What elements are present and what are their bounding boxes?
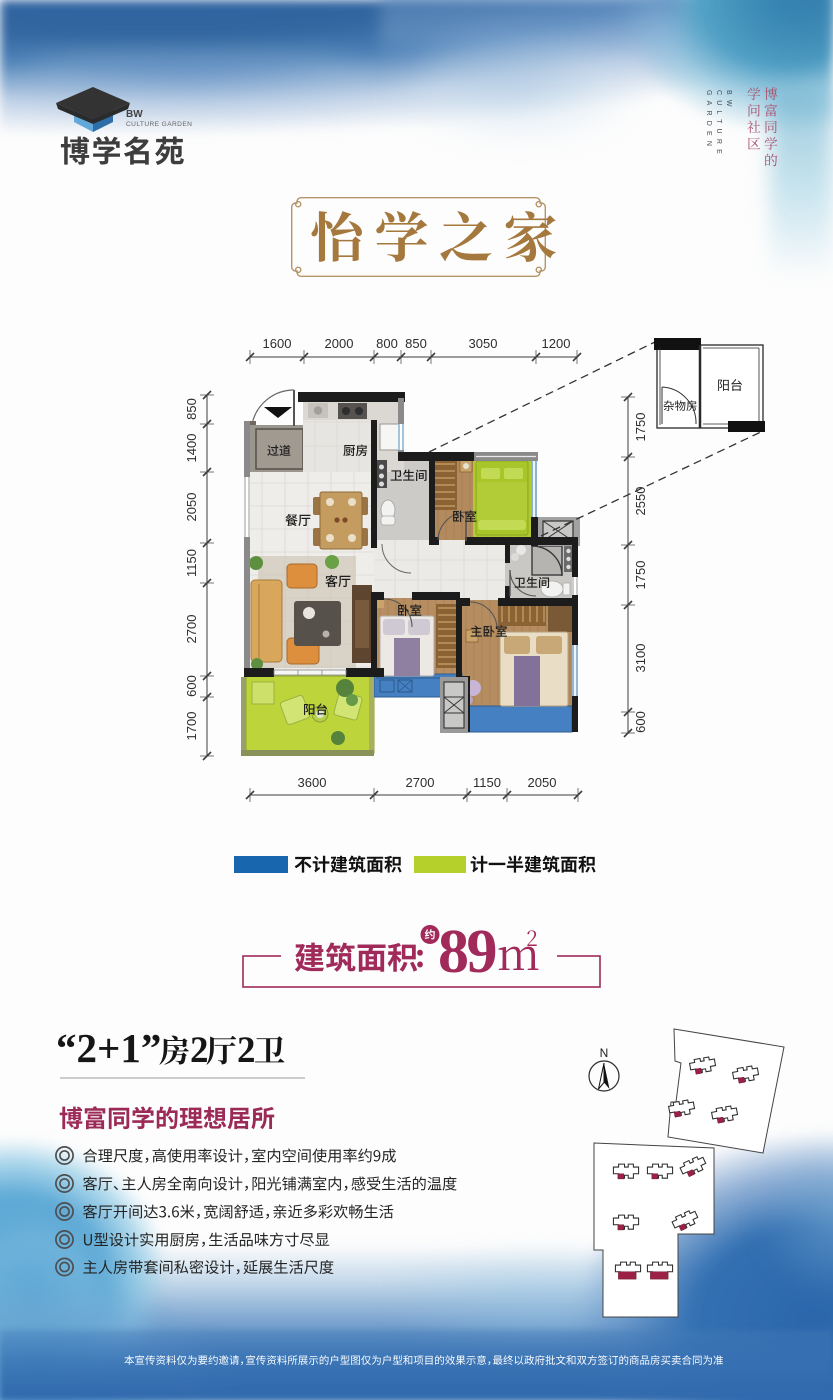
svg-text:2700: 2700 [406, 775, 435, 790]
svg-text:1750: 1750 [633, 561, 648, 590]
svg-text:1150: 1150 [184, 549, 199, 577]
svg-text:3100: 3100 [633, 644, 648, 673]
svg-text:CULTURE: CULTURE [715, 90, 722, 159]
svg-text:3600: 3600 [298, 775, 327, 790]
svg-text:2: 2 [190, 1030, 209, 1071]
svg-text:850: 850 [405, 336, 427, 351]
svg-text:850: 850 [184, 398, 199, 420]
svg-text:1400: 1400 [184, 434, 199, 463]
svg-text:1750: 1750 [633, 413, 648, 442]
svg-text:1600: 1600 [263, 336, 292, 351]
svg-text:2050: 2050 [528, 775, 557, 790]
svg-text:“2+1”: “2+1” [56, 1025, 161, 1071]
svg-text:CULTURE GARDEN: CULTURE GARDEN [126, 121, 192, 128]
svg-text:600: 600 [184, 675, 199, 697]
svg-text:1700: 1700 [184, 712, 199, 741]
svg-text:BW: BW [725, 90, 732, 112]
svg-text:600: 600 [633, 711, 648, 733]
svg-text:GARDEN: GARDEN [705, 90, 712, 151]
svg-text:89: 89 [438, 918, 496, 986]
svg-text:2050: 2050 [184, 493, 199, 522]
svg-text:BW: BW [126, 109, 143, 120]
svg-text:2000: 2000 [325, 336, 354, 351]
svg-text:N: N [600, 1046, 609, 1060]
svg-text:1150: 1150 [473, 775, 501, 790]
svg-text:3050: 3050 [469, 336, 498, 351]
svg-text:800: 800 [376, 336, 398, 351]
svg-text:2700: 2700 [184, 615, 199, 644]
svg-text:1200: 1200 [542, 336, 571, 351]
svg-text:2: 2 [237, 1030, 256, 1071]
